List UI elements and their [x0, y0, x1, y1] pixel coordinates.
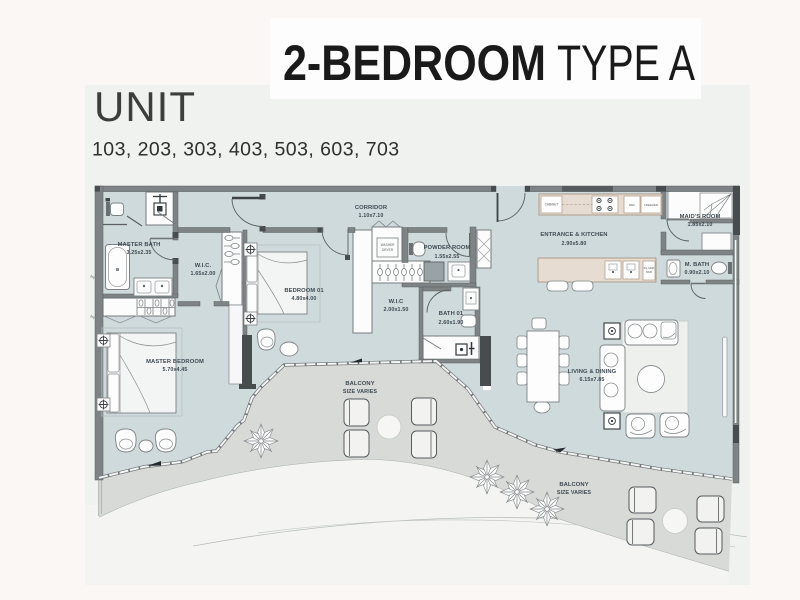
svg-text:2-BEDROOM: 2-BEDROOM: [283, 35, 546, 91]
svg-text:CORRIDOR: CORRIDOR: [355, 205, 388, 211]
svg-text:103, 203, 303, 403, 503, 603,: 103, 203, 303, 403, 503, 603, 703: [92, 139, 400, 161]
svg-text:1.55x2.55: 1.55x2.55: [435, 254, 460, 260]
svg-text:4.80x4.00: 4.80x4.00: [292, 296, 317, 302]
svg-text:SIZE VARIES: SIZE VARIES: [343, 389, 378, 395]
svg-text:3.25x2.35: 3.25x2.35: [127, 250, 152, 256]
svg-text:1.65x2.00: 1.65x2.00: [191, 271, 216, 277]
svg-text:MAID'S ROOM: MAID'S ROOM: [680, 214, 721, 220]
svg-text:W.I.C.: W.I.C.: [195, 263, 212, 269]
svg-text:LIVING & DINING: LIVING & DINING: [568, 369, 617, 375]
svg-text:SIZE VARIES: SIZE VARIES: [557, 490, 592, 496]
svg-text:1.10x7.10: 1.10x7.10: [359, 213, 384, 219]
svg-text:ENTRANCE & KITCHEN: ENTRANCE & KITCHEN: [540, 232, 607, 238]
svg-text:DRYER: DRYER: [382, 248, 394, 252]
svg-text:5.70x4.45: 5.70x4.45: [163, 367, 188, 373]
svg-text:FREEZER: FREEZER: [644, 203, 659, 207]
svg-text:CABINET: CABINET: [545, 203, 559, 207]
svg-text:UNIT: UNIT: [94, 83, 196, 130]
svg-text:BEDROOM 01: BEDROOM 01: [284, 288, 324, 294]
svg-text:MASTER BATH: MASTER BATH: [118, 242, 161, 248]
svg-text:2.90x5.80: 2.90x5.80: [562, 241, 587, 247]
svg-text:SINK: SINK: [646, 270, 653, 274]
svg-text:WASHER: WASHER: [381, 243, 396, 247]
svg-text:6.15x7.85: 6.15x7.85: [580, 377, 605, 383]
svg-text:0.90x2.10: 0.90x2.10: [685, 270, 710, 276]
svg-text:W.I.C: W.I.C: [389, 299, 404, 305]
svg-text:1.85x2.10: 1.85x2.10: [688, 222, 713, 228]
svg-text:REF: REF: [629, 203, 635, 207]
svg-text:POWDER ROOM: POWDER ROOM: [424, 245, 471, 251]
svg-text:2.00x1.50: 2.00x1.50: [384, 307, 409, 313]
svg-text:2.60x1.90: 2.60x1.90: [439, 320, 464, 326]
svg-text:BALCONY: BALCONY: [559, 482, 588, 488]
svg-text:BATH 01: BATH 01: [439, 311, 464, 317]
svg-text:TYPE A: TYPE A: [557, 35, 696, 91]
svg-text:M. BATH: M. BATH: [685, 262, 709, 268]
svg-text:BALCONY: BALCONY: [345, 381, 374, 387]
svg-text:MASTER BEDROOM: MASTER BEDROOM: [146, 359, 204, 365]
